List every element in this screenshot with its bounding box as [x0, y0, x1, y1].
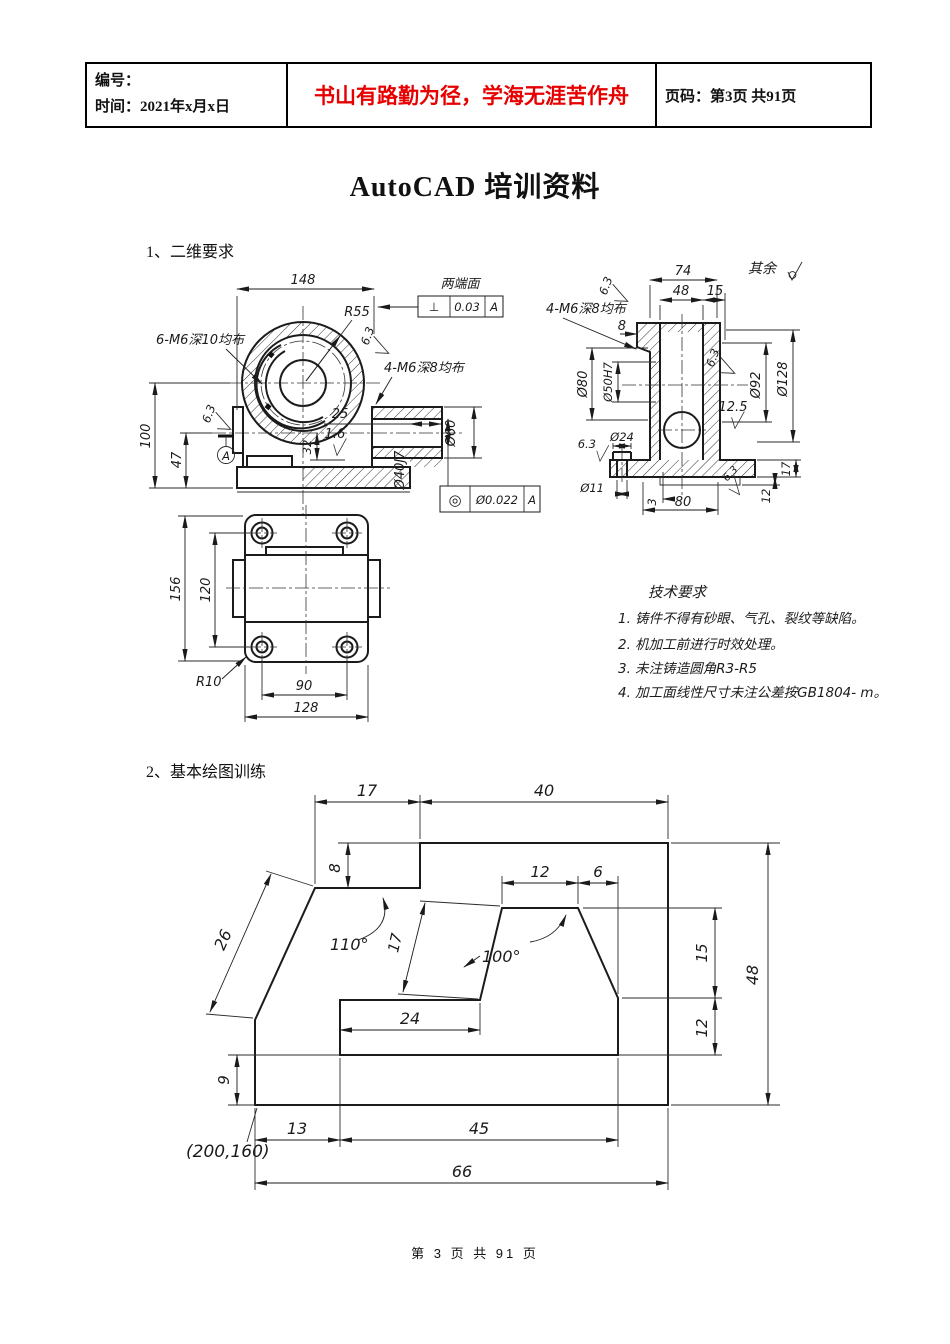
front-view: 148 两端面 ⊥ 0.03 A R55 6.3 6-M6深10均布 4-M6深… [139, 273, 540, 516]
datum-a: A [218, 436, 235, 464]
finish-63-boss: 6.3 [578, 437, 596, 451]
dim-8-ex: 8 [326, 863, 344, 873]
dim-d92: Ø92 [749, 372, 764, 400]
fcf1-datum: A [489, 300, 498, 314]
dim-3: 3 [645, 498, 659, 505]
tech-item-1: 1. 铸件不得有砂眼、气孔、裂纹等缺陷。 [618, 611, 865, 627]
dim-48-side: 48 [673, 284, 690, 299]
dim-45: 45 [469, 1119, 489, 1138]
dim-r10: R10 [196, 675, 222, 690]
dim-d24: Ø24 [609, 430, 634, 444]
tech-item-3: 3. 未注铸造圆角R3-R5 [618, 661, 757, 677]
datum-a-label: A [221, 449, 230, 463]
document-page: 编号： 时间：2021年x月x日 书山有路勤为径，学海无涯苦作舟 页码：第3页 … [0, 0, 950, 1344]
dim-156: 156 [169, 577, 184, 602]
cad-drawings: 148 两端面 ⊥ 0.03 A R55 6.3 6-M6深10均布 4-M6深… [0, 0, 950, 1344]
dim-15-ex: 15 [693, 943, 711, 962]
dim-100: 100 [139, 424, 154, 449]
dim-47: 47 [170, 451, 185, 468]
dim-17-slant: 17 [384, 931, 406, 954]
finish-16: 1.6 [325, 427, 346, 442]
surface-finish-icon: 6.3 [198, 403, 236, 433]
dim-8-side: 8 [618, 319, 626, 334]
concentricity-icon: ◎ [448, 491, 461, 509]
exercise-drawing: 17 40 8 12 6 26 110° 17 [186, 781, 780, 1190]
fcf2-tolerance: Ø0.022 [475, 493, 518, 507]
dim-13: 13 [287, 1119, 307, 1138]
dim-24: 24 [400, 1009, 420, 1028]
dim-90: 90 [296, 679, 313, 694]
dim-6: 6 [593, 863, 603, 881]
dim-25: 25 [332, 407, 349, 422]
rest-finish-icon [788, 262, 802, 280]
top-view: 156 120 R10 90 128 [169, 505, 390, 722]
dim-d80: Ø80 [576, 371, 591, 399]
side-view: 74 48 15 其余 6.3 4-M6深8均布 8 [546, 261, 802, 515]
dim-d50h7: Ø50H7 [601, 361, 615, 402]
tech-title: 技术要求 [648, 584, 708, 601]
dim-80: 80 [675, 495, 692, 510]
dim-d60: Ø60 [444, 420, 459, 448]
dim-26: 26 [210, 927, 236, 953]
rest-label: 其余 [748, 261, 778, 277]
finish-63-topleft: 6.3 [596, 275, 615, 297]
finish-63-left: 6.3 [199, 403, 218, 425]
dim-12-right: 12 [693, 1018, 711, 1037]
note-4m6-side: 4-M6深8均布 [546, 302, 628, 317]
tech-item-2: 2. 机加工前进行时效处理。 [618, 637, 784, 653]
origin-coordinate: (200,160) [186, 1142, 270, 1162]
note-6m6: 6-M6深10均布 [156, 333, 246, 348]
dim-15-side: 15 [707, 284, 724, 299]
dim-32: 32 [300, 440, 314, 455]
dim-66: 66 [452, 1162, 472, 1181]
angle-100: 100° [482, 947, 521, 966]
note-4m6-front: 4-M6深8均布 [384, 361, 466, 376]
surface-finish-icon: 6.3 [356, 325, 395, 357]
dim-d11: Ø11 [579, 481, 604, 495]
fcf2-datum: A [527, 493, 536, 507]
dim-40: 40 [534, 781, 554, 800]
dim-d128: Ø128 [776, 361, 791, 397]
tech-item-4: 4. 加工面线性尺寸未注公差按GB1804- m。 [618, 685, 887, 701]
dim-48-ex: 48 [743, 965, 762, 985]
dim-d40j7: Ø40J7 [393, 450, 408, 491]
dim-148: 148 [291, 273, 316, 288]
surface-finish-icon: 6.3 [595, 275, 633, 305]
corner-holes [247, 518, 362, 662]
surface-finish-icon [597, 445, 609, 461]
dim-17-top: 17 [357, 781, 378, 800]
dim-9: 9 [215, 1075, 233, 1085]
dim-r55: R55 [344, 305, 370, 320]
dim-74: 74 [675, 264, 692, 279]
fcf1-title: 两端面 [440, 277, 481, 292]
dim-12-side: 12 [759, 489, 773, 504]
dim-17-side: 17 [779, 461, 793, 476]
tech-requirements: 技术要求 1. 铸件不得有砂眼、气孔、裂纹等缺陷。 2. 机加工前进行时效处理。… [618, 584, 887, 701]
dim-120: 120 [199, 578, 214, 603]
perpendicularity-icon: ⊥ [429, 300, 439, 314]
finish-125: 12.5 [719, 400, 748, 415]
fcf1-tolerance: 0.03 [454, 300, 480, 314]
dim-128-top: 128 [294, 701, 319, 716]
dim-12-top: 12 [530, 863, 549, 881]
